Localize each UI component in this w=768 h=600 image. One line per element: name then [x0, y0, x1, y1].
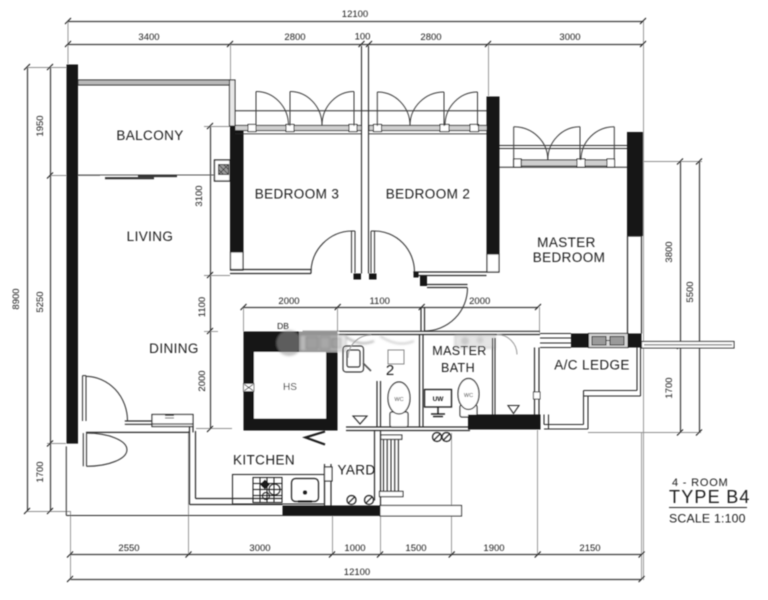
- svg-text:8900: 8900: [11, 288, 22, 309]
- svg-text:MASTER: MASTER: [432, 344, 487, 358]
- svg-text:5500: 5500: [685, 281, 696, 302]
- svg-text:MASTER: MASTER: [537, 235, 596, 250]
- svg-text:BEDROOM 3: BEDROOM 3: [255, 187, 340, 202]
- svg-text:3400: 3400: [138, 32, 159, 43]
- svg-text:1900: 1900: [483, 543, 504, 554]
- svg-text:TYPE B4: TYPE B4: [669, 487, 751, 507]
- svg-text:3800: 3800: [664, 241, 675, 262]
- svg-text:3000: 3000: [559, 32, 580, 43]
- svg-text:DB: DB: [277, 321, 289, 331]
- svg-text:KITCHEN: KITCHEN: [233, 453, 295, 468]
- svg-text:DINING: DINING: [149, 341, 199, 356]
- svg-text:2000: 2000: [278, 296, 299, 307]
- svg-text:BALCONY: BALCONY: [116, 128, 183, 143]
- svg-text:BEDROOM 2: BEDROOM 2: [386, 187, 471, 202]
- svg-text:12100: 12100: [342, 9, 368, 20]
- svg-text:BATH: BATH: [441, 361, 475, 375]
- svg-text:1500: 1500: [405, 543, 426, 554]
- svg-text:YARD: YARD: [337, 463, 375, 478]
- svg-text:1950: 1950: [35, 115, 46, 136]
- svg-text:2000: 2000: [469, 296, 490, 307]
- svg-text:BEDROOM: BEDROOM: [533, 250, 606, 265]
- svg-text:1700: 1700: [664, 377, 675, 398]
- svg-text:2150: 2150: [579, 543, 600, 554]
- svg-text:2000: 2000: [197, 370, 208, 391]
- svg-text:A/C LEDGE: A/C LEDGE: [554, 358, 630, 373]
- svg-text:2550: 2550: [118, 543, 139, 554]
- svg-text:1100: 1100: [197, 297, 208, 317]
- svg-text:100: 100: [355, 32, 371, 43]
- svg-text:2: 2: [386, 362, 394, 379]
- svg-text:1000: 1000: [344, 543, 365, 554]
- svg-text:5250: 5250: [35, 291, 46, 312]
- svg-text:2800: 2800: [284, 32, 305, 43]
- svg-text:12100: 12100: [344, 567, 370, 578]
- svg-text:3000: 3000: [249, 543, 270, 554]
- svg-text:SCALE 1:100: SCALE 1:100: [669, 512, 746, 526]
- svg-text:1700: 1700: [35, 461, 46, 482]
- svg-text:HS: HS: [283, 382, 297, 393]
- svg-text:UW: UW: [433, 396, 445, 403]
- svg-text:WC: WC: [464, 393, 473, 399]
- svg-text:2800: 2800: [420, 32, 441, 43]
- svg-text:LIVING: LIVING: [127, 229, 174, 244]
- svg-text:3100: 3100: [194, 185, 205, 206]
- svg-text:1100: 1100: [369, 296, 389, 307]
- svg-text:WC: WC: [394, 397, 403, 403]
